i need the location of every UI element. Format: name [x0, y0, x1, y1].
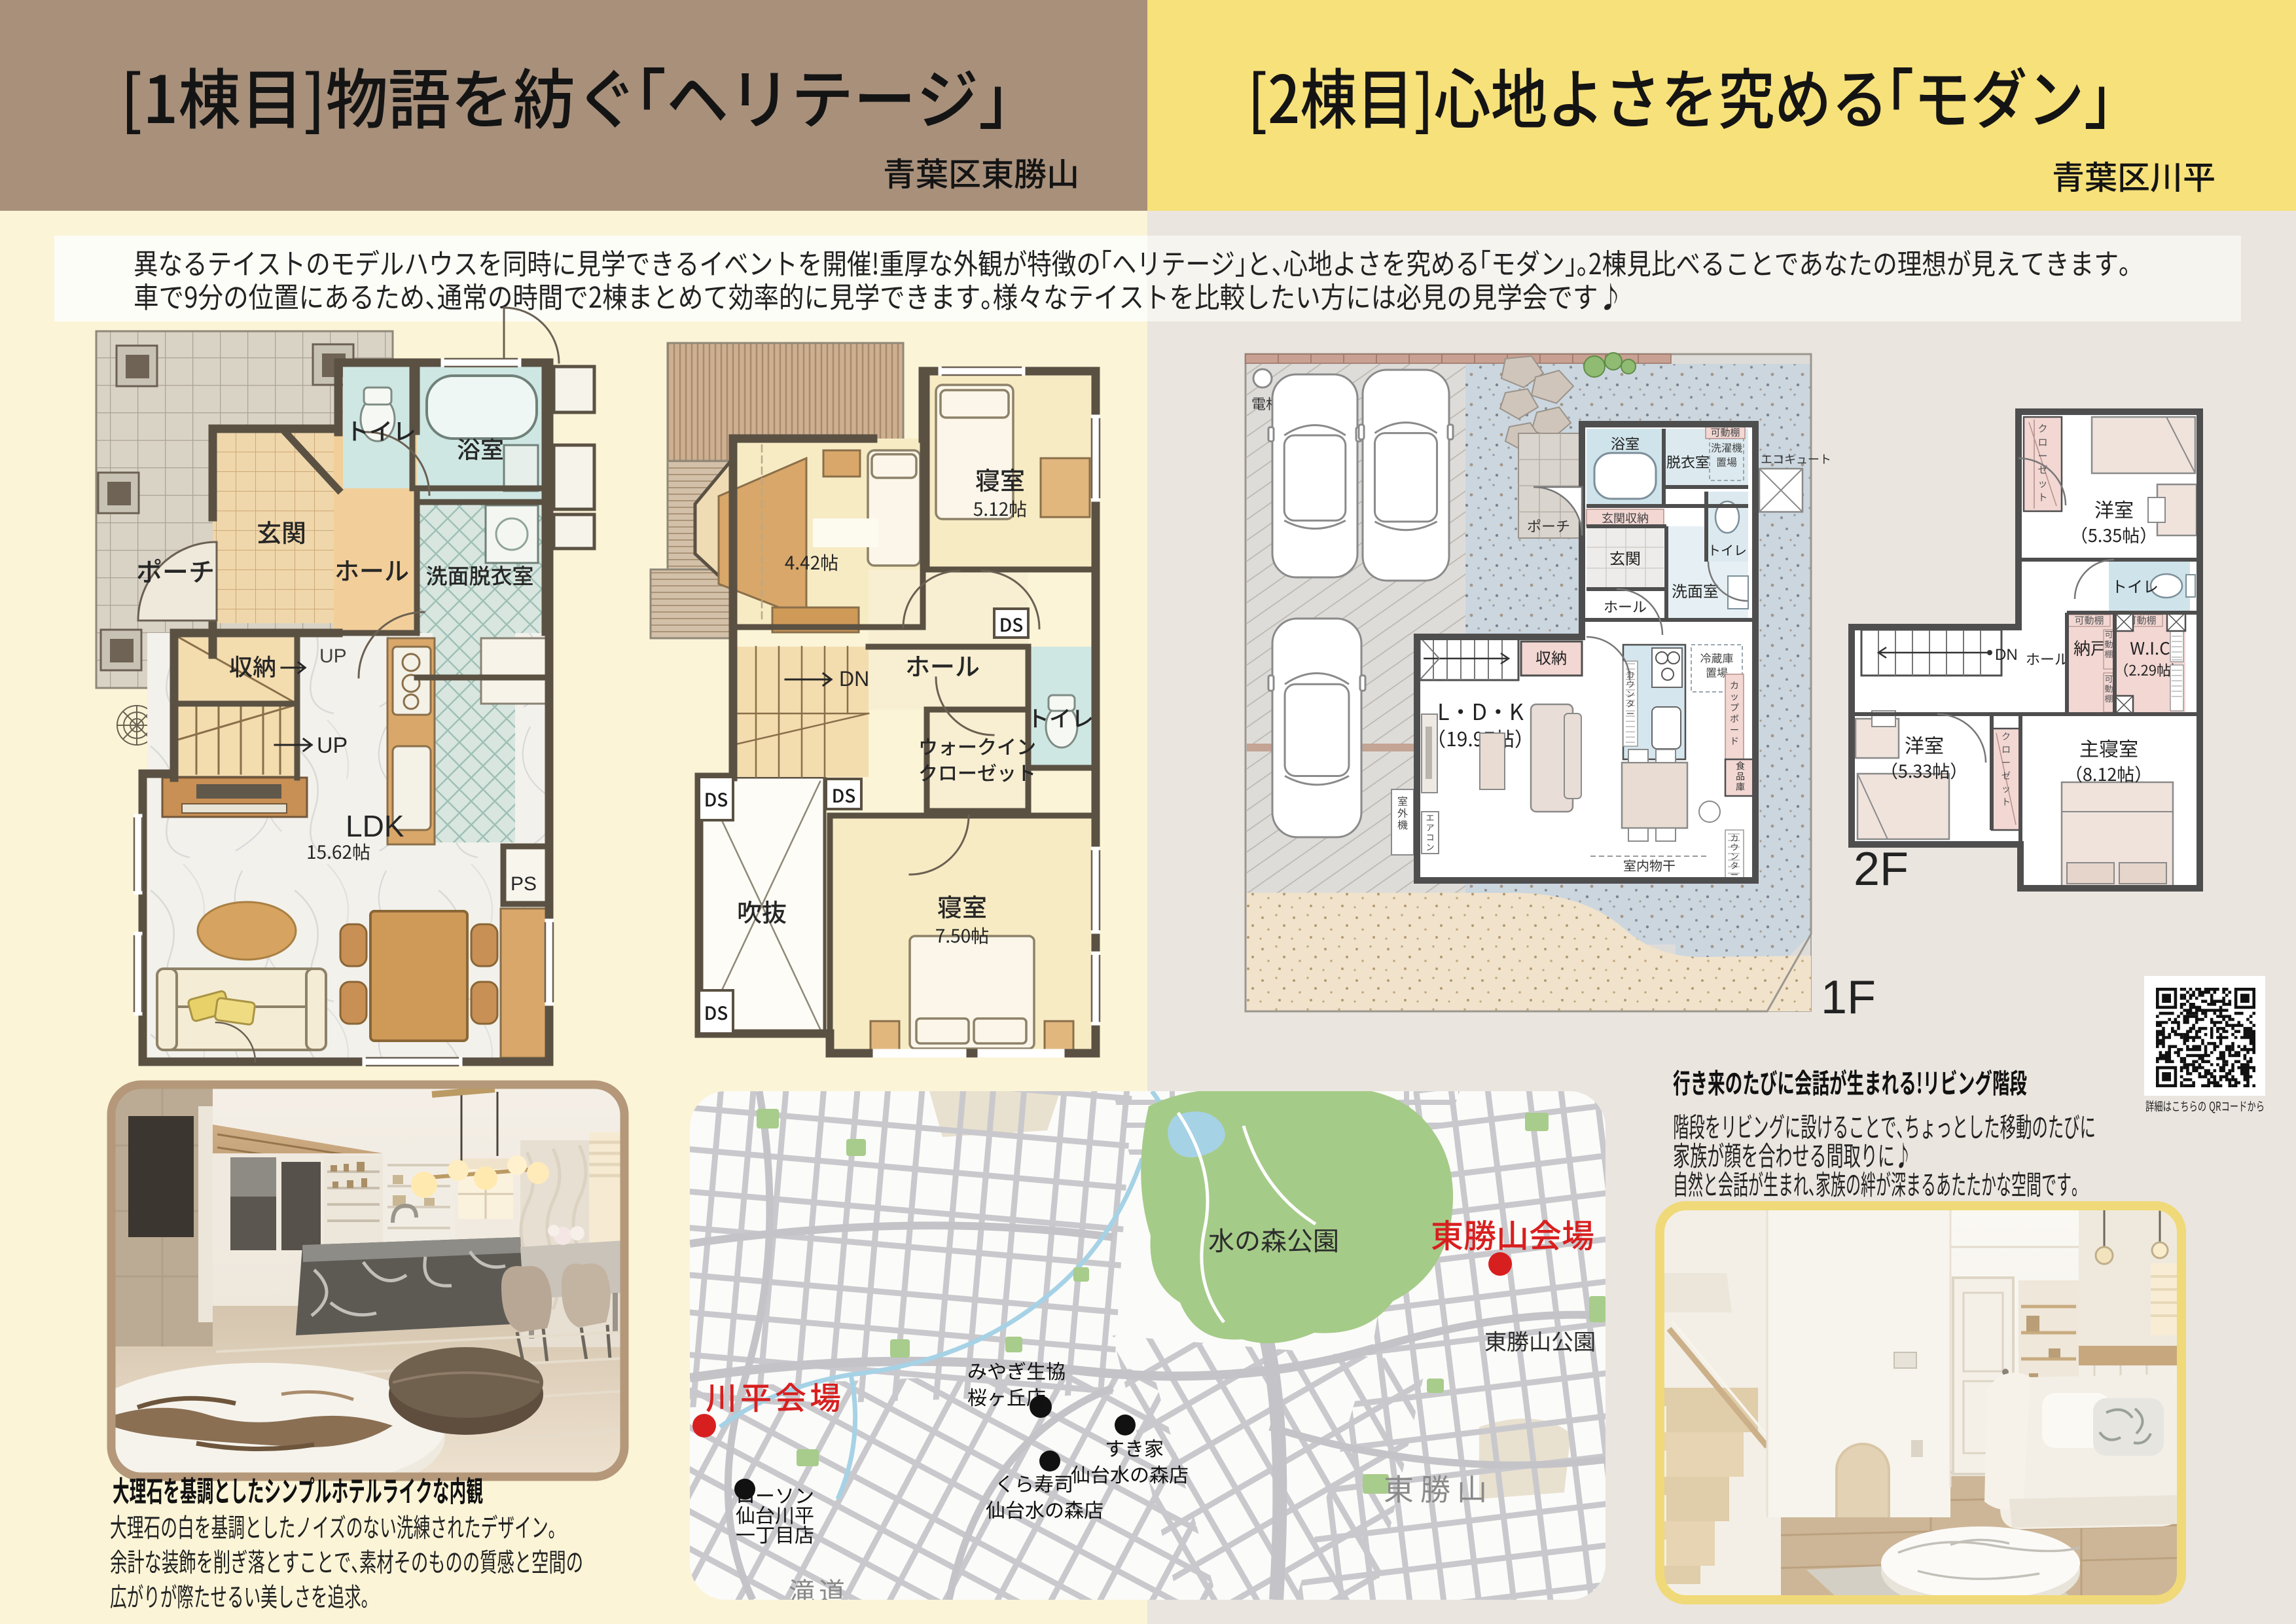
svg-text:UP: UP: [319, 645, 347, 667]
svg-text:1F: 1F: [1821, 971, 1876, 1024]
svg-text:UP: UP: [317, 733, 348, 758]
svg-text:LDK: LDK: [346, 809, 404, 843]
svg-text:PS: PS: [511, 873, 537, 895]
svg-text:DN: DN: [1995, 646, 2018, 664]
svg-text:2F: 2F: [1854, 843, 1909, 895]
svg-text:DN: DN: [839, 667, 869, 691]
